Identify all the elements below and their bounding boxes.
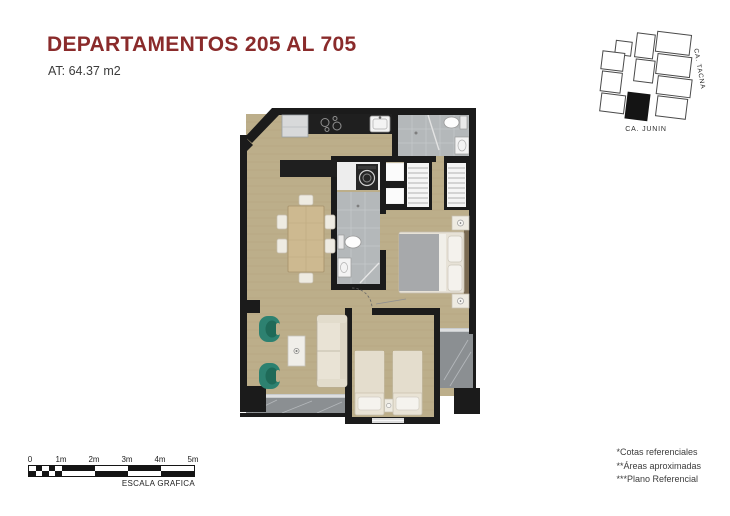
armchair [259,363,280,389]
scale-caption: ESCALA GRAFICA [28,479,195,488]
footnotes: *Cotas referenciales **Áreas aproximadas… [616,446,701,487]
single-bed [355,351,384,415]
footnote-line: **Áreas aproximadas [616,460,701,474]
floor-plan-sheet: { "header": { "title": "DEPARTAMENTOS 20… [0,0,730,516]
pillow [396,397,419,410]
dining-chair [277,239,287,253]
footnote-line: *Cotas referenciales [616,446,701,460]
street-label-junin: CA. JUNIN [600,126,692,133]
toilet [444,116,467,129]
shower-drain [357,205,360,208]
dining-chair [299,273,313,283]
nightstand [452,216,469,230]
scale-tick-label: 4m [154,455,165,464]
bathroom-secondary [337,192,380,284]
nightstand [452,294,469,308]
fridge [282,115,308,137]
coffee-table [288,336,305,366]
bathroom-sink [455,137,469,154]
pillow [448,265,462,291]
sliding-door [440,328,473,332]
graphic-scale: 0 1m 2m 3m 4m 5m ESCALA GRAFICA [28,455,194,489]
dining-chair [325,215,335,229]
pillow [448,236,462,262]
floor-plan [232,100,483,437]
area-subtitle: AT: 64.37 m2 [48,64,121,78]
dining-chair [299,195,313,205]
site-location-map [588,28,700,128]
pillow [358,397,381,410]
dining-chair [277,215,287,229]
dining-chair [325,239,335,253]
nightstand [385,399,394,412]
shower-drain [415,132,418,135]
hall-closet [383,188,404,204]
single-bed [393,351,422,415]
toilet [338,235,361,249]
balcony-bedroom [440,332,473,388]
wardrobe [404,160,432,210]
headboard [464,230,469,294]
kitchen-sink [370,116,390,132]
highlighted-unit [625,92,650,120]
footnote-line: ***Plano Referencial [616,473,701,487]
hall-closet [383,163,404,181]
sofa [317,315,347,387]
bathroom-sink [338,258,351,277]
scale-tick-label: 1m [55,455,66,464]
scale-tick-label: 0 [28,455,32,464]
armchair [259,316,280,342]
scale-bar [28,465,195,477]
page-title: DEPARTAMENTOS 205 AL 705 [47,33,356,57]
washing-machine [356,164,378,190]
scale-tick-label: 3m [121,455,132,464]
wardrobe [444,160,469,210]
scale-tick-label: 2m [88,455,99,464]
bathroom-main [398,115,469,156]
kitchen-cabinet [280,160,337,177]
double-bed [399,232,464,293]
scale-tick-label: 5m [187,455,198,464]
